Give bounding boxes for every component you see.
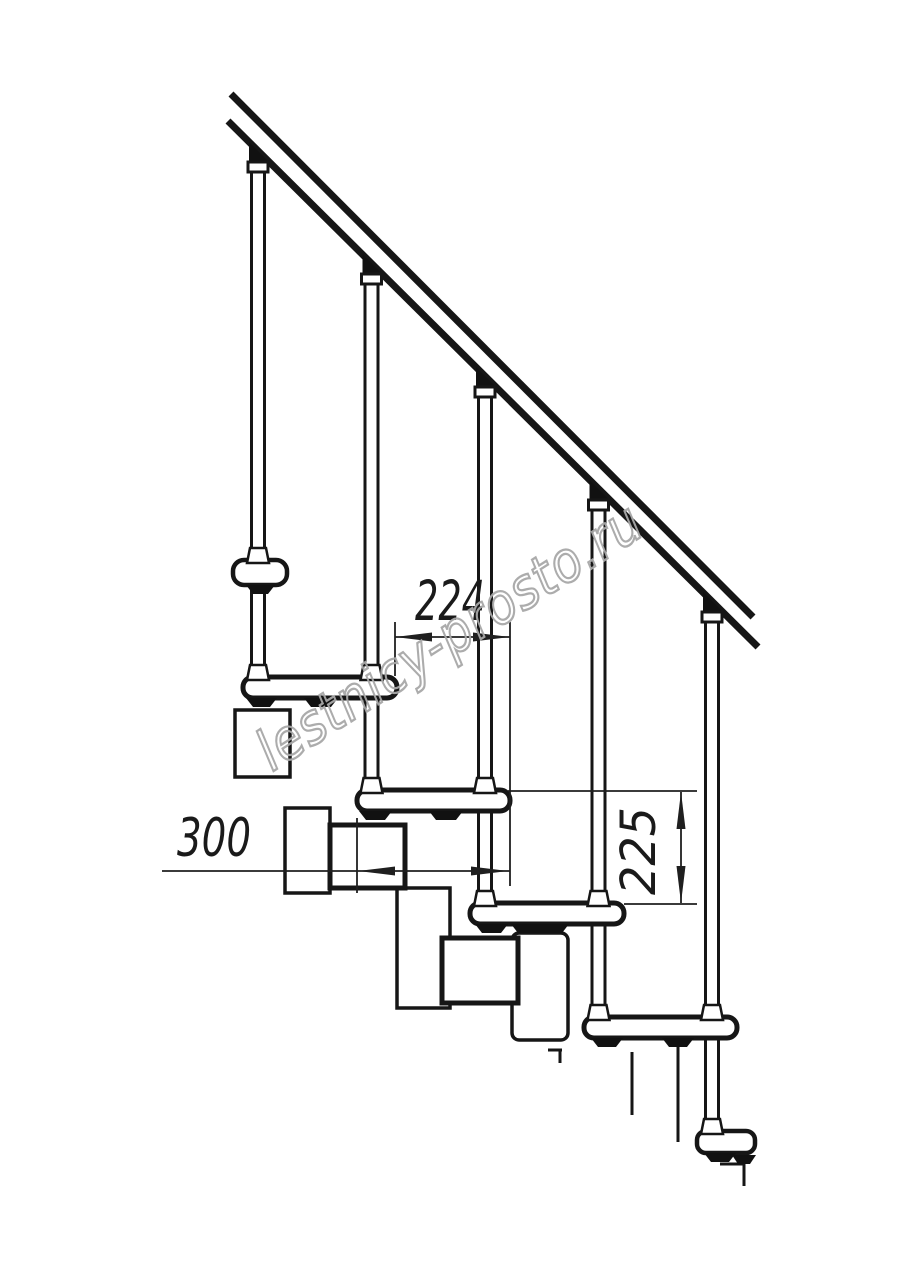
arrowhead-up xyxy=(677,792,686,829)
arrowhead-right xyxy=(471,867,508,876)
baluster-1 xyxy=(252,172,265,680)
stringer-module-connector-2 xyxy=(285,808,330,893)
cutoff-lines xyxy=(548,1043,744,1186)
arrowhead-down xyxy=(677,866,686,903)
stringer-module-box-3 xyxy=(442,938,518,1003)
baluster-4 xyxy=(592,510,605,1020)
dimension-225 xyxy=(508,791,697,904)
stringer-module-box-2 xyxy=(330,825,405,888)
staircase-drawing-canvas: 224 300 225 lestnicy-prosto.ru xyxy=(0,0,914,1280)
dimension-300-label: 300 xyxy=(177,808,251,869)
dimension-225-label: 225 xyxy=(611,807,667,895)
staircase-drawing: 224 300 225 lestnicy-prosto.ru xyxy=(0,0,914,1280)
baluster-5 xyxy=(706,622,719,1134)
